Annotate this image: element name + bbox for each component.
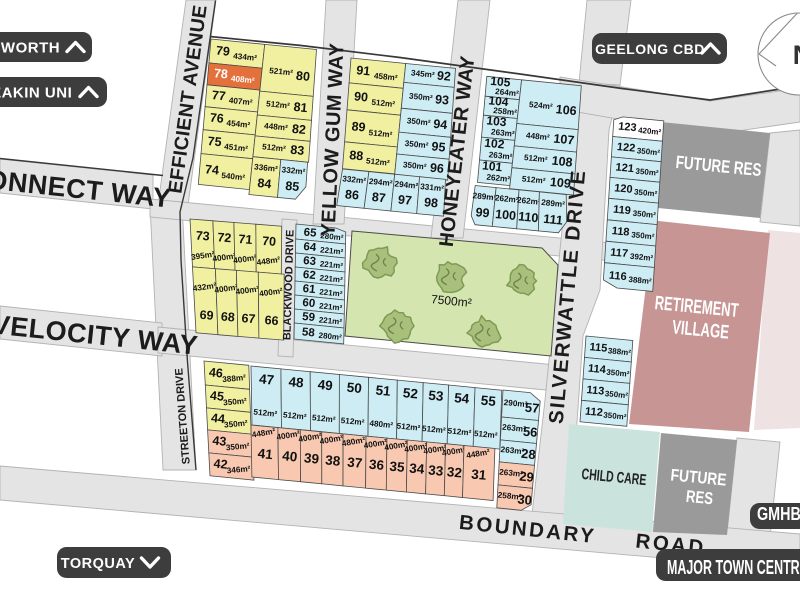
- svg-text:32: 32: [446, 464, 462, 480]
- svg-text:78: 78: [213, 66, 228, 81]
- svg-text:74: 74: [204, 162, 219, 177]
- svg-text:51: 51: [375, 383, 392, 399]
- svg-text:63: 63: [303, 255, 317, 268]
- svg-text:DEAKIN UNI: DEAKIN UNI: [0, 85, 72, 102]
- svg-text:72: 72: [217, 230, 232, 245]
- svg-text:94: 94: [433, 117, 448, 132]
- svg-text:61: 61: [302, 283, 317, 296]
- svg-text:91: 91: [356, 63, 371, 78]
- svg-text:30: 30: [517, 491, 533, 507]
- svg-text:71: 71: [238, 232, 253, 247]
- svg-text:75: 75: [207, 134, 222, 149]
- svg-text:64: 64: [303, 241, 318, 254]
- svg-text:38: 38: [325, 452, 342, 468]
- svg-text:TORQUAY: TORQUAY: [61, 556, 135, 572]
- svg-text:103: 103: [486, 113, 508, 129]
- svg-text:115: 115: [589, 341, 608, 355]
- svg-text:123: 123: [618, 121, 637, 135]
- svg-text:107: 107: [553, 132, 575, 148]
- svg-text:47: 47: [258, 371, 274, 387]
- svg-text:116: 116: [608, 270, 627, 284]
- svg-text:73: 73: [195, 228, 210, 243]
- svg-text:49: 49: [317, 377, 333, 393]
- svg-text:36: 36: [368, 457, 385, 473]
- svg-text:97: 97: [397, 193, 412, 208]
- svg-text:85: 85: [285, 179, 300, 194]
- svg-text:40: 40: [282, 448, 298, 464]
- svg-text:114: 114: [587, 363, 607, 377]
- svg-text:GEELONG CBD: GEELONG CBD: [595, 41, 705, 57]
- svg-text:41: 41: [257, 446, 274, 462]
- svg-text:98: 98: [423, 195, 438, 210]
- svg-text:95: 95: [431, 139, 446, 154]
- svg-text:57: 57: [524, 400, 540, 416]
- svg-text:69: 69: [199, 308, 214, 323]
- svg-text:108: 108: [551, 154, 573, 170]
- svg-text:86: 86: [344, 187, 359, 202]
- svg-text:112: 112: [584, 405, 603, 419]
- svg-text:67: 67: [241, 311, 256, 326]
- svg-text:70: 70: [262, 234, 277, 249]
- svg-text:111: 111: [543, 212, 564, 228]
- svg-text:121: 121: [615, 161, 634, 175]
- svg-text:43: 43: [212, 434, 227, 449]
- svg-text:58: 58: [301, 326, 316, 339]
- svg-text:81: 81: [293, 100, 308, 115]
- svg-text:77: 77: [211, 88, 226, 103]
- svg-text:62: 62: [302, 269, 316, 282]
- svg-text:66: 66: [264, 313, 279, 328]
- svg-text:29: 29: [519, 469, 535, 485]
- svg-text:87: 87: [371, 190, 386, 205]
- svg-text:53: 53: [428, 388, 445, 404]
- svg-text:120: 120: [614, 182, 633, 196]
- svg-text:122: 122: [616, 141, 635, 155]
- svg-text:59: 59: [302, 311, 316, 324]
- svg-text:79: 79: [215, 43, 230, 58]
- svg-text:31: 31: [471, 467, 488, 483]
- svg-text:37: 37: [347, 455, 363, 471]
- svg-text:76: 76: [209, 111, 224, 126]
- svg-text:55: 55: [480, 393, 497, 409]
- svg-text:MAJOR TOWN CENTRE: MAJOR TOWN CENTRE: [667, 557, 800, 579]
- svg-text:93: 93: [434, 92, 449, 107]
- svg-text:28: 28: [521, 446, 537, 462]
- svg-text:35: 35: [389, 459, 406, 475]
- svg-text:56: 56: [522, 424, 538, 440]
- svg-text:101: 101: [482, 158, 504, 174]
- svg-text:EPWORTH: EPWORTH: [0, 40, 60, 57]
- svg-text:106: 106: [555, 102, 577, 118]
- svg-text:100: 100: [495, 207, 517, 223]
- svg-text:83: 83: [290, 143, 305, 158]
- svg-text:34: 34: [409, 461, 426, 477]
- svg-text:118: 118: [611, 225, 630, 239]
- svg-text:39: 39: [303, 450, 319, 466]
- svg-text:99: 99: [475, 205, 490, 220]
- svg-text:89: 89: [351, 119, 366, 134]
- svg-text:110: 110: [518, 209, 540, 225]
- svg-text:102: 102: [484, 136, 506, 152]
- svg-text:96: 96: [429, 161, 444, 176]
- svg-text:119: 119: [613, 204, 632, 218]
- svg-text:113: 113: [586, 384, 605, 398]
- svg-text:84: 84: [257, 176, 272, 191]
- svg-text:RES: RES: [685, 487, 714, 509]
- svg-text:50: 50: [346, 380, 362, 396]
- svg-text:80: 80: [295, 69, 310, 84]
- svg-text:52: 52: [402, 385, 418, 401]
- svg-text:33: 33: [428, 462, 445, 478]
- svg-text:N: N: [793, 40, 800, 70]
- svg-text:90: 90: [353, 89, 368, 104]
- svg-text:65: 65: [303, 227, 318, 240]
- svg-text:88: 88: [349, 148, 364, 163]
- svg-text:GMHBA STADIUM: GMHBA STADIUM: [757, 503, 800, 524]
- svg-text:68: 68: [220, 309, 235, 324]
- svg-text:117: 117: [610, 246, 629, 260]
- svg-text:48: 48: [288, 374, 305, 390]
- svg-text:92: 92: [436, 69, 451, 84]
- svg-text:60: 60: [302, 297, 316, 310]
- svg-text:82: 82: [291, 122, 306, 137]
- svg-text:54: 54: [454, 390, 471, 406]
